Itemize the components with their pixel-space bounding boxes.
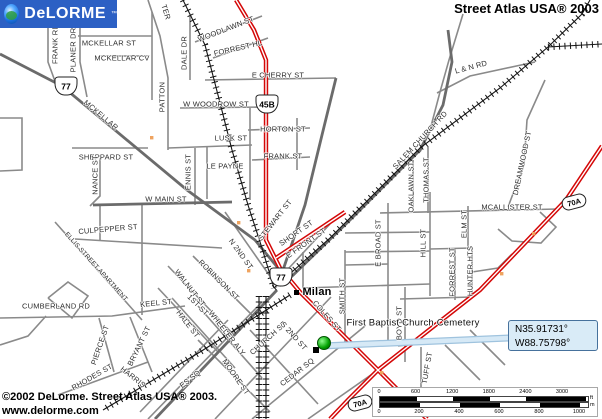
minor-roads [0,0,558,419]
coordinate-callout[interactable]: N35.91731° W88.75798° [508,320,598,351]
delorme-logo: DeLORME ™ [0,0,117,28]
scale-bar: ft m 06001200180024003000020040060080010… [372,387,598,417]
copyright-block: ©2002 DeLorme. Street Atlas USA® 2003. w… [2,390,217,418]
scale-tick: 0 [377,389,380,395]
scale-tick: 800 [534,409,543,415]
waypoint-marker[interactable] [318,337,331,350]
address-dot [500,272,503,275]
longitude-value: W88.75798° [515,337,597,351]
address-dot [237,221,240,224]
scale-tick: 600 [494,409,503,415]
address-dot [532,232,535,235]
map-markers [294,290,331,353]
scale-tick: 1200 [446,389,458,395]
address-dot [380,371,383,374]
website-line: www.delorme.com [2,404,217,418]
map-viewport[interactable]: FRANK RDPLANER DRMCKELLAR STMCKELLAR CVD… [0,0,602,419]
address-dot [247,269,250,272]
app-title: Street Atlas USA® 2003 [454,1,599,16]
copyright-line: ©2002 DeLorme. Street Atlas USA® 2003. [2,390,217,404]
scale-tick: 600 [411,389,420,395]
latitude-value: N35.91731° [515,323,597,337]
globe-icon [4,4,19,24]
major-roads [0,30,452,419]
scale-tick: 0 [377,409,380,415]
meters-unit-label: m [590,402,595,408]
road-network[interactable] [0,0,602,419]
logo-text: DeLORME [24,5,106,23]
poi-marker-square [313,347,319,353]
scale-tick: 3000 [556,389,568,395]
scale-tick: 1000 [573,409,585,415]
scale-bar-segments [379,402,589,408]
address-dot [150,136,153,139]
trademark-symbol: ™ [111,11,117,17]
feet-unit-label: ft [590,395,593,401]
scale-tick: 400 [454,409,463,415]
scale-tick: 2400 [519,389,531,395]
scale-tick: 200 [414,409,423,415]
town-marker-square [294,290,299,295]
scale-tick: 1800 [483,389,495,395]
